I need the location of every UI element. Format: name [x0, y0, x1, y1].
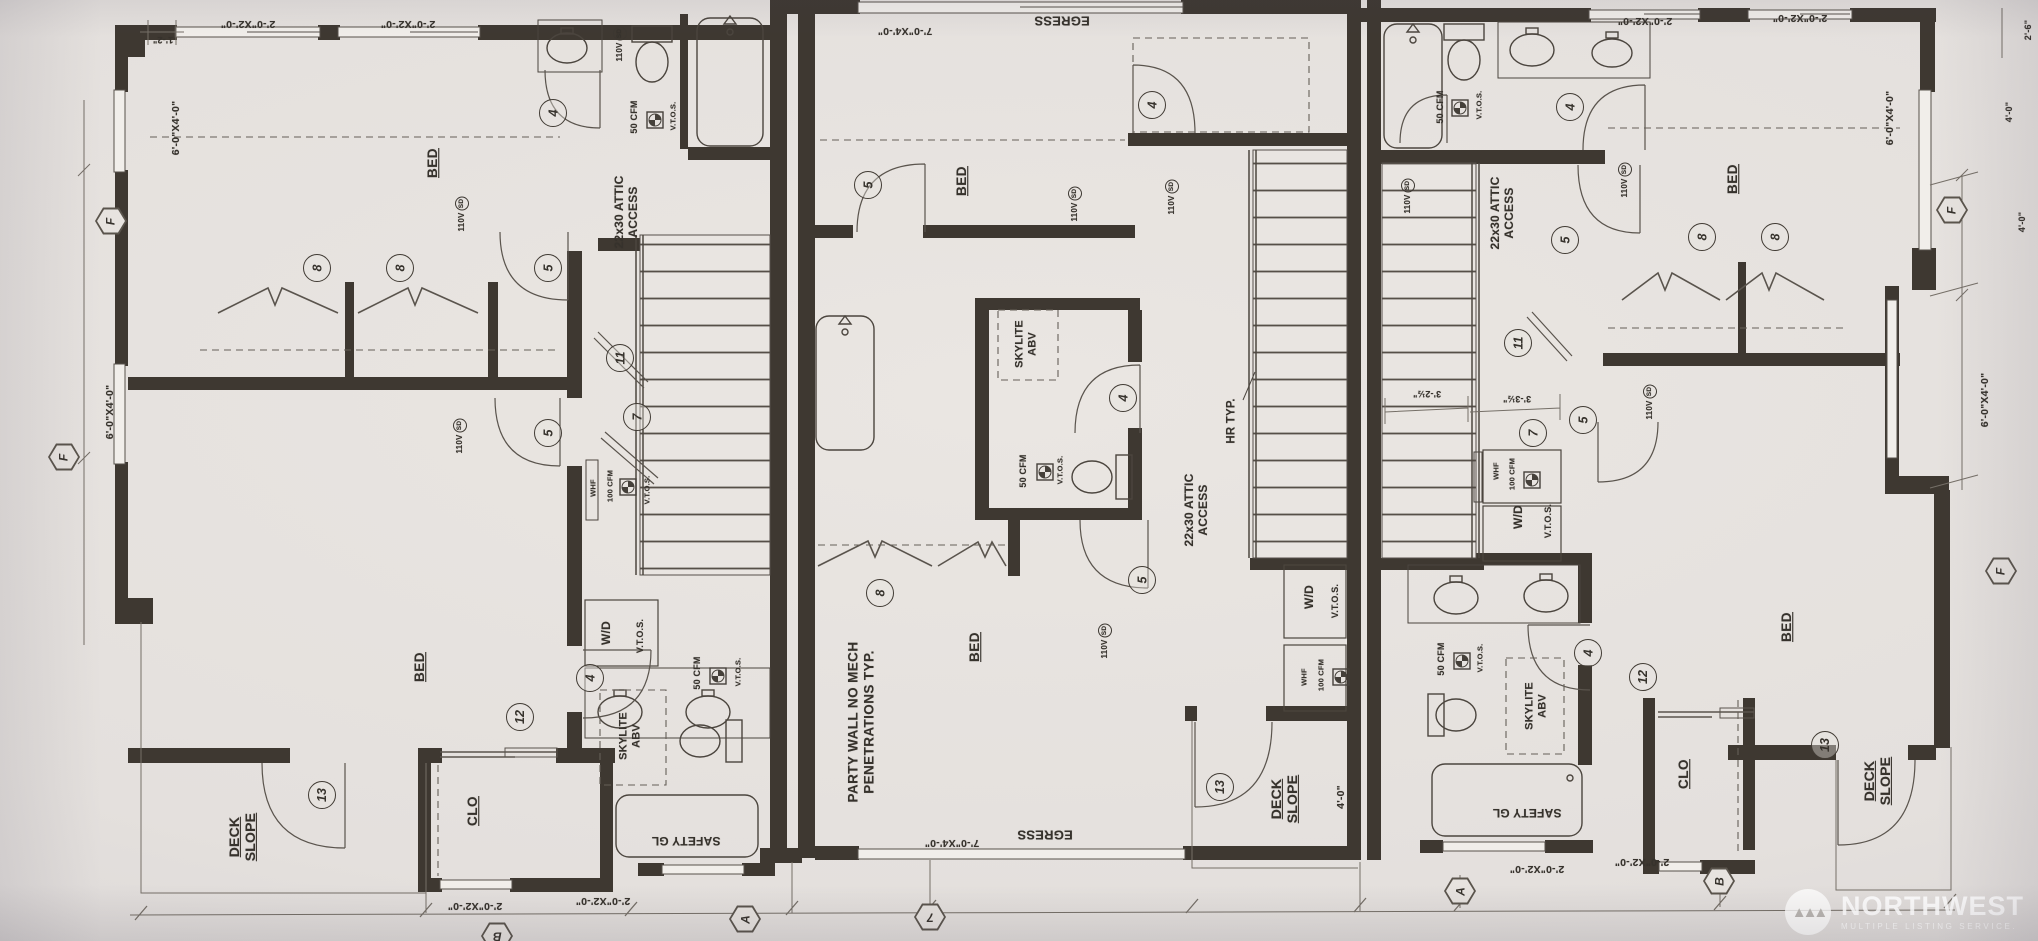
- door-tag-4: 4: [539, 99, 567, 127]
- window-dim: 2'-0"X2'-0": [221, 18, 276, 30]
- stair-dim: 3'-2½": [1413, 389, 1441, 399]
- toilet: [680, 720, 742, 762]
- floorplan-photo: 2'-0"X2'-0" 2'-0"X2'-0" 1'-2" EGRESS 7'-…: [0, 0, 2038, 941]
- window-dim: 6'-0"X4'-0": [104, 385, 116, 440]
- window-dim: 2'-0"X2'-0": [381, 18, 436, 30]
- window-dim: 7'-0"X4'-0": [925, 837, 980, 849]
- attic-access-note: 22x30 ATTICACCESS: [1489, 177, 1517, 250]
- smoke-detector-label: 110VSD: [1165, 179, 1179, 214]
- cfm100-label: 100 CFM: [1509, 458, 1518, 490]
- vtos-label: V.T.O.S.: [735, 658, 744, 687]
- door-tag-8: 8: [1761, 223, 1789, 251]
- door-tag-12: 12: [506, 703, 534, 731]
- room-label-deck-slope: DECKSLOPE: [1861, 757, 1893, 805]
- toilet: [1428, 694, 1476, 736]
- window-dim: 6'-0"X4'-0": [1884, 91, 1896, 146]
- sink: [1592, 32, 1632, 67]
- smoke-detector-label: 110VSD: [453, 418, 467, 453]
- door-tag-5: 5: [854, 171, 882, 199]
- vtos-label: V.T.O.S.: [670, 102, 679, 131]
- attic-access-note: 22x30 ATTICACCESS: [613, 176, 641, 249]
- deck-dim: 4'-0": [1335, 785, 1347, 809]
- whf-label: WHF: [1493, 462, 1502, 480]
- door-tag-8: 8: [386, 254, 414, 282]
- smoke-detector-label: 110VSD: [455, 196, 469, 231]
- door-tag-13: 13: [308, 781, 336, 809]
- window-dim: 2'-0"X2'-0": [1773, 12, 1828, 24]
- cfm50-label: 50 CFM: [1435, 90, 1445, 123]
- window-dim: 6'-0"X4'-0": [170, 101, 182, 156]
- toilet: [1072, 455, 1132, 499]
- room-label-bed: BED: [1779, 612, 1795, 642]
- washer-dryer-label: W/D: [600, 621, 614, 645]
- smoke-detector-label: 110VSD: [1401, 178, 1415, 213]
- window-dim: 2'-0"X2'-0": [1615, 856, 1670, 868]
- door-tag-5: 5: [534, 419, 562, 447]
- door-tag-12: 12: [1629, 663, 1657, 691]
- vtos-label: V.T.O.S.: [1330, 584, 1340, 618]
- room-label-bed: BED: [954, 166, 970, 196]
- washer-dryer-label: W/D: [1512, 505, 1526, 529]
- door-tag-8: 8: [1688, 223, 1716, 251]
- walls: [115, 0, 1950, 892]
- door-tag-7: 7: [1519, 419, 1547, 447]
- vtos-label: V.T.O.S.: [1057, 456, 1066, 485]
- door-tag-5: 5: [1551, 226, 1579, 254]
- room-label-bed: BED: [425, 148, 441, 178]
- door-tag-7: 7: [623, 403, 651, 431]
- door-tag-4: 4: [576, 664, 604, 692]
- dim-2-6: 2'-6": [2023, 20, 2033, 40]
- window-dim: 2'-0"X2'-0": [1510, 863, 1565, 875]
- cfm50-label: 50 CFM: [1018, 454, 1028, 487]
- skylight-note: SKYLITEABV: [617, 712, 642, 760]
- safety-glass-note: SAFETY GL: [652, 833, 721, 847]
- dim-4-0: 4'-0": [2017, 212, 2027, 232]
- sink: [686, 690, 730, 728]
- vtos-label: V.T.O.S.: [1477, 644, 1486, 673]
- smoke-detector-label: 110VSD: [1068, 186, 1082, 221]
- window-dim: 2'-0"X2'-0": [1618, 15, 1673, 27]
- egress-label: EGRESS: [1017, 827, 1072, 842]
- bathtub: [1432, 764, 1582, 836]
- door-tag-8: 8: [866, 579, 894, 607]
- room-label-deck-slope: DECKSLOPE: [1268, 775, 1300, 823]
- cfm100-label: 100 CFM: [1318, 659, 1327, 691]
- whf-label: WHF: [1301, 668, 1310, 686]
- door-tag-5: 5: [534, 254, 562, 282]
- room-label-closet: CLO: [465, 796, 481, 826]
- cfm50-label: 50 CFM: [629, 100, 639, 133]
- door-tag-4: 4: [1556, 93, 1584, 121]
- windows: [114, 2, 1931, 889]
- vtos-label: V.T.O.S.: [1543, 504, 1553, 538]
- washer-dryer-label: W/D: [1303, 585, 1317, 609]
- room-label-bed: BED: [967, 632, 983, 662]
- smoke-detector-label: 110VSD: [1618, 162, 1632, 197]
- safety-glass-note: SAFETY GL: [1493, 805, 1562, 819]
- room-label-deck-slope: DECKSLOPE: [226, 813, 258, 861]
- dim-4-0: 4'-0": [2004, 102, 2014, 122]
- window-dim: 2'-0"X2'-0": [448, 900, 503, 912]
- egress-label: EGRESS: [1034, 13, 1089, 28]
- dim-1-2: 1'-2": [153, 35, 173, 45]
- vtos-label: V.T.O.S.: [635, 619, 645, 653]
- door-tag-5: 5: [1128, 566, 1156, 594]
- whf-label: WHF: [590, 479, 599, 497]
- vtos-label: V.T.O.S.: [1476, 91, 1485, 120]
- skylight-note: SKYLITEABV: [1523, 682, 1548, 730]
- bathtub: [1384, 24, 1442, 148]
- window-dim: 7'-0"X4'-0": [878, 25, 933, 37]
- door-tag-11: 11: [606, 344, 634, 372]
- smoke-detector-label: 110VSD: [1098, 623, 1112, 658]
- window-dim: 2'-0"X2'-0": [576, 895, 631, 907]
- door-tag-4: 4: [1138, 91, 1166, 119]
- cfm50-label: 50 CFM: [1436, 642, 1446, 675]
- door-tag-13: 13: [1811, 731, 1839, 759]
- stair-dim: 3'-3½": [1503, 394, 1531, 404]
- toilet: [1444, 24, 1484, 80]
- party-wall-note: PARTY WALL NO MECHPENETRATIONS TYP.: [845, 642, 876, 803]
- sink: [1510, 28, 1554, 66]
- smoke-detector-label: 110VSD: [613, 26, 627, 61]
- skylight-note: SKYLITEABV: [1013, 320, 1038, 368]
- cfm100-label: 100 CFM: [607, 470, 616, 502]
- door-tag-4: 4: [1574, 639, 1602, 667]
- vtos-label: V.T.O.S.: [644, 476, 653, 505]
- door-tag-5: 5: [1569, 406, 1597, 434]
- room-label-closet: CLO: [1676, 759, 1692, 789]
- door-swings: [218, 65, 1915, 848]
- sink: [1434, 576, 1478, 614]
- sink: [1524, 574, 1568, 612]
- bathtub: [816, 316, 874, 450]
- door-tag-13: 13: [1206, 773, 1234, 801]
- door-tag-8: 8: [303, 254, 331, 282]
- window-dim: 6'-0"X4'-0": [1979, 373, 1991, 428]
- room-label-bed: BED: [412, 652, 428, 682]
- smoke-detector-label: 110VSD: [1643, 384, 1657, 419]
- handrail-note: HR TYP.: [1225, 398, 1238, 443]
- cfm50-label: 50 CFM: [692, 656, 702, 689]
- room-label-bed: BED: [1725, 164, 1741, 194]
- attic-access-note: 22x30 ATTICACCESS: [1183, 474, 1211, 547]
- door-tag-4: 4: [1109, 384, 1137, 412]
- door-tag-11: 11: [1504, 329, 1532, 357]
